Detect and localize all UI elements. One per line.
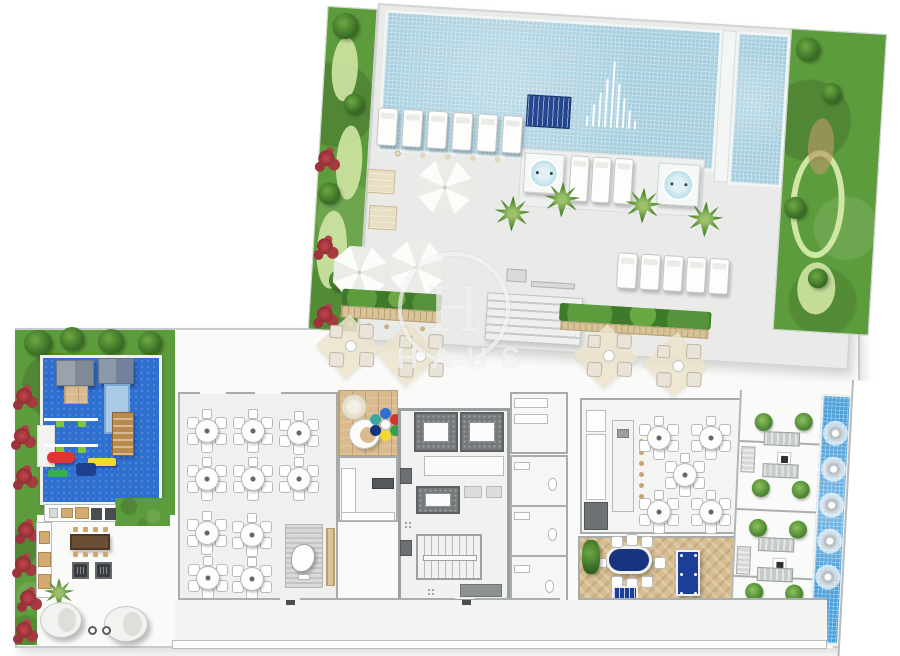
restroom-wall [510, 555, 568, 557]
stairwell [416, 534, 482, 580]
round-daybed [104, 606, 148, 642]
potted-shrub [789, 520, 808, 539]
sun-lounger [426, 110, 448, 149]
cutting-boards [61, 508, 73, 518]
tree [60, 327, 84, 351]
bbq-counter [44, 504, 116, 522]
floor-drain [428, 589, 430, 591]
party-room-door-gap [200, 390, 226, 394]
sun-lounger [476, 113, 498, 152]
grill-module [758, 537, 795, 553]
kitchen-counter [341, 512, 395, 521]
sun-lounger [662, 255, 684, 292]
elevator-lobby [424, 456, 504, 476]
door-mark [286, 600, 295, 605]
hot-tub [656, 162, 700, 206]
fountain-icon [582, 54, 643, 135]
toilet [545, 580, 554, 593]
entry-mat [460, 584, 502, 597]
dining-table-6 [185, 555, 229, 599]
bbq-bench-seats [73, 552, 78, 557]
side-table [102, 626, 111, 635]
balcony-parapet [172, 640, 827, 649]
balcony-wall [580, 598, 825, 600]
gourmet-counter [586, 434, 606, 500]
curved-sofa-cut [360, 427, 376, 443]
dining-table-6 [184, 510, 228, 554]
restroom-sink [514, 512, 530, 520]
shaft-box [400, 540, 412, 556]
climbing-frame [112, 412, 134, 456]
play-pad [76, 463, 96, 476]
sun-lounger [639, 254, 661, 291]
seesaw [47, 452, 75, 463]
kitchen-counter [341, 468, 356, 514]
pool-entry-steps [526, 94, 572, 129]
charcoal-grill [72, 562, 89, 579]
balcony-wall [475, 598, 560, 600]
island-sink [617, 429, 629, 438]
hot-tub [523, 152, 565, 194]
dining-table-6 [184, 408, 228, 452]
restroom-wall [510, 505, 568, 507]
card-table [606, 546, 652, 574]
flower-bush [15, 556, 31, 572]
dining-table-6 [229, 556, 273, 600]
party-room-door-gap [255, 390, 281, 394]
sun-lounger [401, 109, 423, 148]
round-vent [825, 460, 843, 478]
round-vent [819, 568, 837, 586]
in-pool-lounger [612, 158, 634, 205]
grill-module [757, 567, 794, 583]
dining-table-6 [229, 512, 273, 556]
deck-mat [366, 169, 395, 195]
tree [98, 329, 124, 354]
dining-table-6 [688, 489, 732, 533]
round-vent [821, 532, 839, 550]
restroom-sink [514, 462, 530, 470]
flower-bush [14, 428, 30, 444]
bbq-garden-patch [115, 498, 170, 526]
low-bench-wall [506, 268, 527, 282]
restroom-sink [514, 565, 530, 573]
potted-shrub [749, 519, 768, 538]
built-in-grills [91, 508, 102, 520]
corner-plant [582, 540, 600, 574]
toilet [548, 478, 557, 491]
play-bench [48, 470, 68, 477]
service-elevator [416, 486, 460, 514]
toilet [548, 528, 557, 541]
dining-table-6 [230, 456, 274, 500]
massage-lounger [736, 546, 751, 575]
floor-drain [405, 522, 407, 524]
play-house-deck [64, 386, 88, 404]
sun-lounger [376, 107, 398, 146]
cooktop [372, 478, 394, 489]
flower-bush [20, 590, 36, 606]
dining-table-6 [184, 456, 228, 500]
shaft-box [400, 468, 412, 484]
side-table [88, 626, 97, 635]
grill-module [762, 463, 799, 479]
sun-lounger [708, 258, 730, 295]
deck-mat [368, 205, 397, 231]
pool-deck-wing [304, 0, 889, 434]
flower-bush [16, 622, 32, 638]
utility-duct [464, 486, 482, 498]
piano-bench [298, 574, 310, 580]
potted-shrub [751, 479, 770, 498]
counter-sink [49, 508, 58, 518]
massage-lounger [740, 446, 755, 473]
sun-lounger [685, 256, 707, 293]
sideboard [326, 528, 335, 586]
round-daybed [40, 602, 82, 638]
bottom-balcony [175, 600, 827, 640]
wood-boards [39, 531, 50, 544]
sun-lounger [501, 115, 523, 154]
flower-bush [18, 522, 34, 538]
tree [24, 330, 52, 356]
play-house-roof [56, 360, 94, 386]
balcony-wall [178, 598, 280, 600]
flower-bush [16, 468, 32, 484]
elevator-shaft [460, 412, 504, 452]
restrooms [510, 455, 568, 603]
sun-lounger [616, 252, 638, 289]
in-pool-lounger [568, 155, 590, 202]
tree [138, 331, 162, 355]
support-shelf [514, 414, 548, 424]
in-pool-lounger [590, 156, 612, 203]
play-house-roof [98, 358, 134, 384]
bbq-side-counter [36, 522, 52, 598]
dining-table-6 [636, 489, 680, 533]
grill-module [764, 431, 801, 447]
bbq-bench-seats [73, 527, 78, 532]
dining-table-6 [276, 456, 320, 500]
elevator-shaft [414, 412, 458, 452]
balcony-wall [300, 598, 455, 600]
colorful-pouf-set [380, 419, 391, 430]
potted-shrub [791, 480, 810, 499]
dining-table-6 [230, 408, 274, 452]
door-mark [462, 600, 471, 605]
floor-plan-rendering: H HAUS [0, 0, 900, 656]
dining-table-6 [276, 410, 320, 454]
flower-bush [16, 388, 32, 404]
swing-seats [56, 421, 64, 427]
utility-duct [486, 486, 502, 498]
island-counter [612, 420, 634, 512]
dark-cabinet [584, 502, 608, 530]
lap-pool [727, 31, 790, 188]
billiard-table [676, 550, 700, 596]
round-vent [823, 496, 841, 514]
charcoal-grill [95, 562, 112, 579]
sun-lounger [451, 112, 473, 151]
bbq-dining-table [70, 534, 110, 550]
